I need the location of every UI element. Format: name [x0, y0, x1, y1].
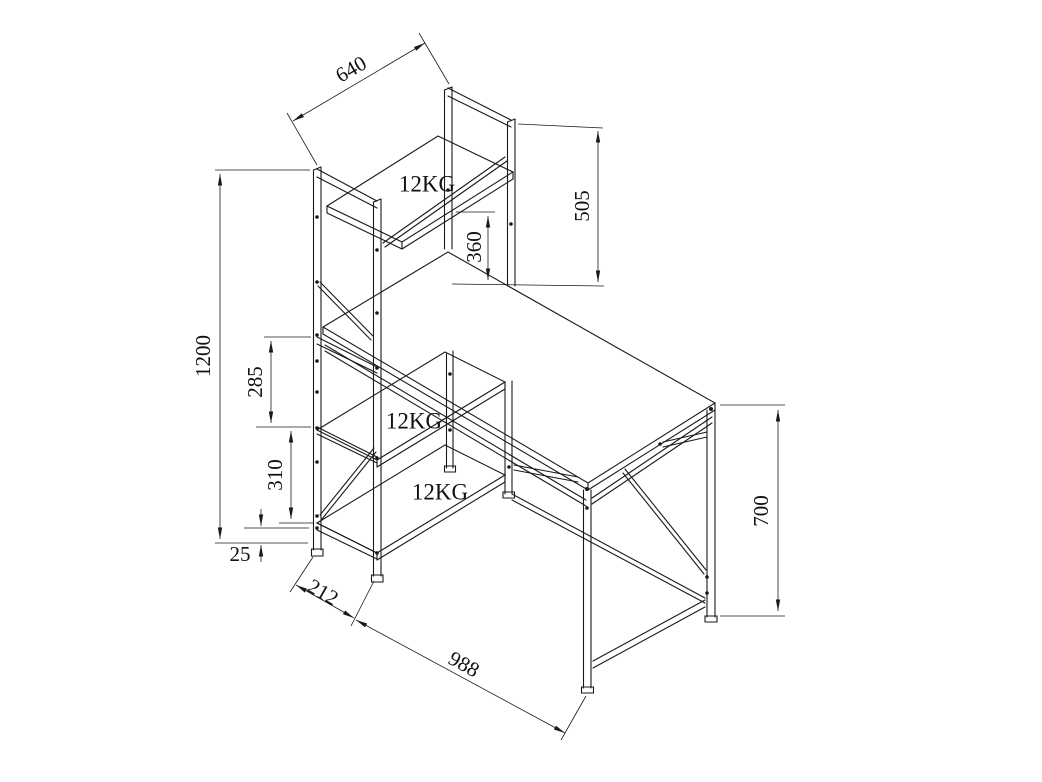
- lower-shelves: [317, 351, 578, 560]
- desk-back-stretcher: [512, 494, 705, 603]
- dim-212-label: 212: [303, 574, 342, 611]
- drawing-canvas: 640 505 360 1200 285 310 25 212 988 700 …: [0, 0, 1042, 782]
- dimension-25: [244, 509, 309, 562]
- hutch-back-left-post: [445, 87, 453, 249]
- shelf-to-desk-brace: [514, 465, 578, 482]
- dim-1200-label: 1200: [191, 335, 215, 377]
- desk: [323, 252, 717, 693]
- tower-screws: [315, 215, 379, 555]
- load-label-bottom-shelf: 12KG: [412, 479, 468, 504]
- dim-360-label: 360: [462, 231, 486, 263]
- dim-25-label: 25: [230, 542, 251, 566]
- dim-700-label: 700: [749, 495, 773, 527]
- dim-310-label: 310: [263, 459, 287, 491]
- load-label-top-shelf: 12KG: [399, 171, 455, 196]
- hutch-top-rail: [448, 88, 511, 127]
- dim-285-label: 285: [243, 366, 267, 398]
- desk-front-right-leg: [582, 490, 594, 693]
- desk-bottom-rail-right: [593, 600, 705, 668]
- technical-drawing: 640 505 360 1200 285 310 25 212 988 700 …: [0, 0, 1042, 782]
- desk-back-right-leg: [705, 410, 717, 622]
- load-label-middle-shelf: 12KG: [386, 408, 442, 433]
- dim-640-label: 640: [331, 51, 370, 88]
- hutch-back-right-post: [508, 119, 516, 286]
- dim-988-label: 988: [444, 646, 483, 682]
- tower-braces: [318, 282, 376, 519]
- dimension-640: [287, 33, 449, 165]
- shelf-support-leg-right: [503, 381, 515, 498]
- dim-505-label: 505: [570, 190, 594, 222]
